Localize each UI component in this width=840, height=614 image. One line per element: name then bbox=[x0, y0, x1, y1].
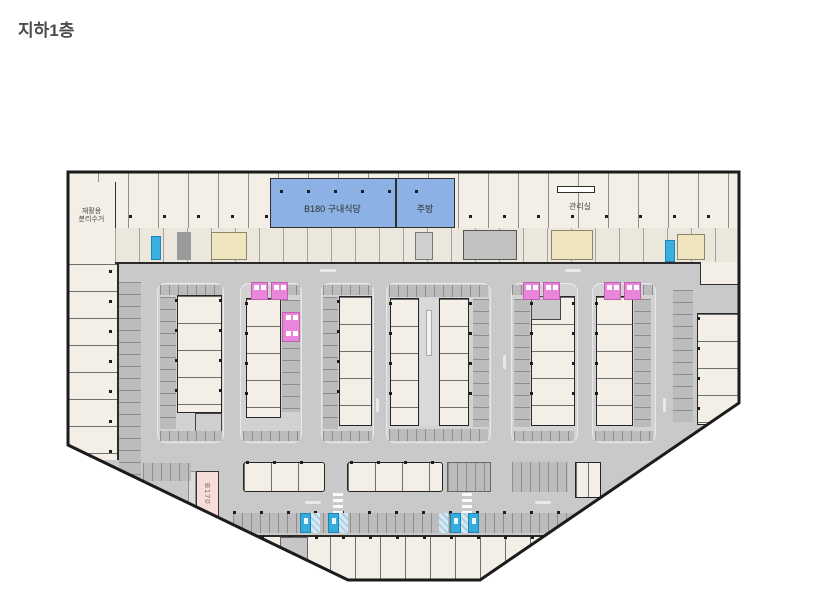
loading-dock bbox=[463, 230, 517, 260]
pedestrian-crossing bbox=[648, 493, 658, 513]
management-office-door bbox=[557, 186, 595, 193]
storage-units bbox=[339, 296, 372, 426]
cafeteria-label: B180 구내식당 bbox=[270, 204, 395, 215]
ramp bbox=[426, 310, 432, 356]
parking-stalls bbox=[673, 290, 693, 422]
column-dots bbox=[175, 299, 178, 411]
storage-units-band bbox=[255, 535, 655, 580]
lane-marking bbox=[535, 501, 551, 504]
cafeteria-kitchen-divider bbox=[395, 178, 397, 228]
machine-room bbox=[280, 537, 308, 567]
management-office-label: 관리실 bbox=[545, 202, 615, 212]
recycling-label-line1: 재활용 bbox=[82, 208, 101, 215]
column-dots bbox=[530, 302, 533, 422]
facility-rooms bbox=[575, 462, 601, 498]
storage-units bbox=[246, 298, 281, 418]
unit-b170-room: B170 bbox=[196, 471, 219, 517]
lane-marking bbox=[320, 269, 336, 272]
column-dots bbox=[469, 302, 472, 422]
stair-core bbox=[177, 232, 191, 260]
floorplan: 재활용 분리수거 B180 구내식당 주방 관리실 bbox=[65, 170, 742, 592]
lane-marking bbox=[215, 355, 218, 369]
column-dots bbox=[109, 270, 112, 458]
accessible-parking-stall bbox=[450, 513, 461, 533]
column-dots bbox=[337, 300, 340, 420]
column-dots bbox=[572, 302, 575, 422]
accessible-parking-stall bbox=[468, 513, 479, 533]
parking-stalls bbox=[119, 282, 141, 496]
storage-units bbox=[596, 296, 633, 426]
parking-stalls bbox=[323, 285, 372, 295]
corner-room bbox=[700, 262, 741, 285]
parking-stalls bbox=[514, 299, 530, 427]
reserved-parking-stalls bbox=[251, 282, 288, 300]
storage-units bbox=[390, 298, 419, 426]
recycling-label: 재활용 분리수거 bbox=[68, 208, 115, 225]
unit-b170-label: B170 bbox=[197, 472, 218, 516]
column-dots bbox=[246, 461, 322, 464]
cafeteria-room bbox=[270, 178, 455, 228]
parking-stalls bbox=[512, 462, 568, 492]
parking-stalls bbox=[160, 431, 222, 441]
parking-stalls bbox=[473, 299, 489, 427]
parking-stalls bbox=[243, 431, 300, 441]
column-dots bbox=[261, 536, 649, 539]
accessible-parking-stall bbox=[300, 513, 311, 533]
lane-marking bbox=[305, 501, 321, 504]
elevator bbox=[665, 240, 675, 262]
reserved-parking-stalls bbox=[523, 282, 560, 300]
floorplan-interior: 재활용 분리수거 B180 구내식당 주방 관리실 bbox=[65, 170, 742, 592]
pedestrian-crossing bbox=[462, 493, 472, 513]
accessible-stall-hatch bbox=[439, 513, 448, 533]
parking-stalls bbox=[323, 297, 338, 429]
column-dots bbox=[595, 302, 598, 422]
parking-stalls bbox=[143, 463, 191, 481]
storage-units-row bbox=[243, 462, 325, 492]
stair-core bbox=[195, 413, 222, 433]
parking-stalls bbox=[634, 299, 651, 427]
recycling-label-line2: 분리수거 bbox=[79, 216, 105, 223]
accessible-stall-hatch bbox=[339, 513, 348, 533]
page-title: 지하1층 bbox=[18, 16, 74, 41]
screenshot: 지하1층 재활용 분리수거 B180 구내식당 주방 관리실 bbox=[0, 0, 840, 614]
column-dots bbox=[697, 317, 700, 421]
lane-marking bbox=[503, 355, 506, 369]
storage-units bbox=[177, 295, 222, 413]
parking-stalls bbox=[447, 462, 491, 492]
restroom bbox=[211, 232, 247, 260]
lane-marking bbox=[376, 398, 379, 412]
storage-units-row bbox=[347, 462, 443, 492]
storage-units bbox=[439, 298, 469, 426]
kitchen-label: 주방 bbox=[395, 204, 455, 215]
column-dots bbox=[350, 461, 440, 464]
parking-stalls bbox=[323, 431, 372, 441]
column-dots bbox=[219, 299, 222, 411]
parking-stalls bbox=[595, 431, 653, 441]
restroom bbox=[551, 230, 593, 260]
stair-core bbox=[415, 232, 433, 260]
lane-marking bbox=[565, 269, 581, 272]
parking-stalls bbox=[643, 285, 653, 295]
reserved-parking-stalls bbox=[282, 312, 300, 342]
column-dots bbox=[245, 302, 248, 414]
column-dots bbox=[280, 190, 440, 193]
parking-stalls bbox=[160, 297, 176, 429]
parking-stalls bbox=[160, 285, 222, 295]
parking-stalls bbox=[389, 429, 488, 441]
parking-stalls bbox=[514, 431, 574, 441]
reserved-parking-stalls bbox=[604, 282, 641, 300]
pedestrian-crossing bbox=[333, 493, 343, 513]
parking-stalls bbox=[389, 285, 488, 297]
parking-stalls bbox=[287, 285, 300, 295]
column-dots bbox=[389, 302, 392, 422]
lane-marking bbox=[663, 398, 666, 412]
accessible-parking-stall bbox=[328, 513, 339, 533]
right-rooms-block bbox=[697, 313, 740, 425]
accessible-stall-hatch bbox=[311, 513, 320, 533]
elevator bbox=[151, 236, 161, 260]
restroom bbox=[677, 234, 705, 260]
